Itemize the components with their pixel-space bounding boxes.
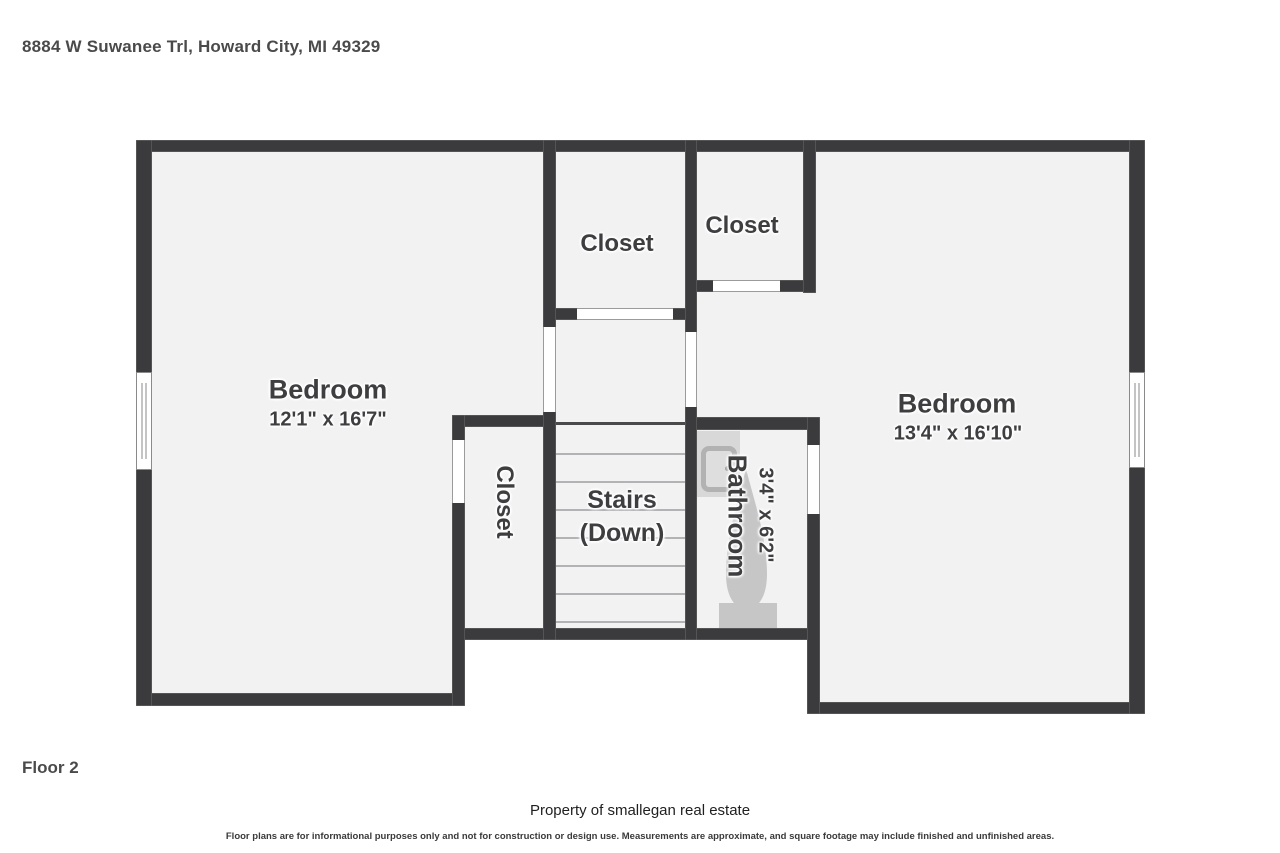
window-right-bedroom: [1129, 372, 1145, 468]
room-label-stairs: Stairs (Down): [580, 484, 665, 550]
door-opening-closet2: [713, 280, 780, 292]
stairs-label-line1: Stairs: [580, 484, 665, 517]
room-label-closet-lower: Closet: [490, 465, 518, 538]
room-label-bedroom-left: Bedroom: [269, 375, 388, 406]
window-pane: [1135, 383, 1140, 457]
wall-closet2-right: [803, 140, 816, 293]
wall-right-bedroom-bottom: [808, 702, 1145, 714]
disclaimer-text: Floor plans are for informational purpos…: [0, 831, 1280, 842]
floor-label: Floor 2: [22, 758, 79, 778]
room-dims-bedroom-left: 12'1" x 16'7": [269, 409, 386, 432]
wall-middle-bottom: [452, 628, 820, 640]
floor-plan: Bedroom 12'1" x 16'7" Closet Closet Bedr…: [0, 0, 1280, 853]
stairs-label-line2: (Down): [580, 517, 665, 550]
room-label-bedroom-right: Bedroom: [898, 389, 1017, 420]
window-left-bedroom: [136, 372, 152, 470]
stair-step-line: [556, 453, 685, 455]
property-attribution: Property of smallegan real estate: [0, 802, 1280, 819]
window-pane: [142, 383, 147, 459]
room-label-bathroom: Bathroom: [722, 455, 753, 578]
room-label-closet-top-left: Closet: [580, 230, 653, 258]
stair-step-line: [556, 565, 685, 567]
stair-step-line: [556, 593, 685, 595]
door-opening-closet1: [577, 308, 673, 320]
door-opening-lower-closet: [452, 440, 465, 503]
wall-outer-top: [136, 140, 1145, 152]
floor-plan-page: 8884 W Suwanee Trl, Howard City, MI 4932…: [0, 0, 1280, 853]
room-dims-bathroom: 3'4" x 6'2": [754, 467, 777, 562]
wall-bathroom-top: [685, 417, 820, 430]
door-opening-bathroom: [807, 445, 820, 514]
door-opening-left-bedroom: [543, 327, 556, 412]
room-label-closet-top-right: Closet: [705, 212, 778, 240]
stair-step-line: [556, 621, 685, 623]
wall-lower-closet-top: [452, 415, 556, 427]
room-dims-bedroom-right: 13'4" x 16'10": [894, 423, 1023, 446]
stair-step-line: [556, 481, 685, 483]
wall-left-bedroom-bottom: [136, 693, 465, 706]
door-opening-right-bedroom: [685, 332, 697, 407]
stair-edge-line: [556, 422, 685, 425]
